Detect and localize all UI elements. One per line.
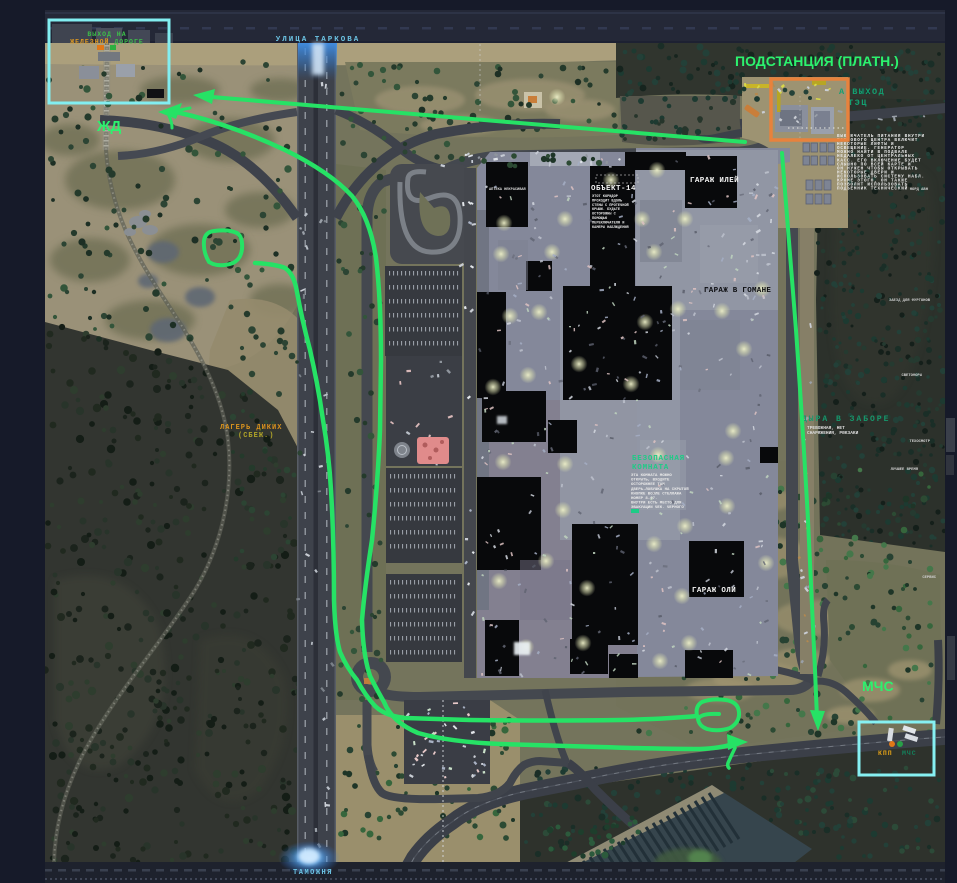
- svg-text:СЕРВИС: СЕРВИС: [922, 576, 936, 580]
- svg-text:СНАРЯЖЕНИЯ, РЮКЗАКИ: СНАРЯЖЕНИЯ, РЮКЗАКИ: [807, 430, 859, 436]
- svg-text:ПРОХОДИТ ВДОЛЬ: ПРОХОДИТ ВДОЛЬ: [592, 199, 623, 203]
- svg-text:КНОПКЕ ВОЗЛЕ СТЕЛЛАЖА: КНОПКЕ ВОЗЛЕ СТЕЛЛАЖА: [631, 492, 682, 496]
- svg-text:ОСТОРОЖНЫ С: ОСТОРОЖНЫ С: [592, 213, 617, 217]
- svg-text:НОМЕР 8-07.: НОМЕР 8-07.: [631, 497, 657, 501]
- svg-text:ТЕХОСМОТР: ТЕХОСМОТР: [909, 440, 930, 444]
- svg-text:ЗАЕЗД ДЛЯ ФУРГОНОВ: ЗАЕЗД ДЛЯ ФУРГОНОВ: [889, 299, 931, 303]
- svg-text:МЧС: МЧС: [862, 678, 894, 694]
- svg-text:ЖЕЛЕЗНОЙ ДОРОГЕ: ЖЕЛЕЗНОЙ ДОРОГЕ: [70, 38, 144, 46]
- svg-text:ЛУЧШЕЕ ВРЕМЯ: ЛУЧШЕЕ ВРЕМЯ: [891, 468, 919, 472]
- svg-text:ПЕРЕКЛЮЧАТЕЛЯ И: ПЕРЕКЛЮЧАТЕЛЯ И: [592, 221, 624, 225]
- svg-text:СТЕНЫ С ПРОТЕЧКОЙ: СТЕНЫ С ПРОТЕЧКОЙ: [592, 203, 629, 208]
- svg-text:ВНУТРИ ЕСТЬ МЕСТО ДЛЯ: ВНУТРИ ЕСТЬ МЕСТО ДЛЯ: [631, 502, 682, 506]
- svg-text:НОРД АВН: НОРД АВН: [910, 188, 929, 192]
- svg-text:ДЫРА В ЗАБОРЕ: ДЫРА В ЗАБОРЕ: [802, 415, 890, 424]
- svg-text:ПОМОЩЬЮ: ПОМОЩЬЮ: [592, 217, 608, 221]
- svg-text:ЖД: ЖД: [96, 118, 122, 135]
- svg-text:ЛАГЕРЬ ДИКИХ: ЛАГЕРЬ ДИКИХ: [220, 424, 282, 432]
- svg-text:ПОДСТАНЦИЯ (ПЛАТН.): ПОДСТАНЦИЯ (ПЛАТН.): [735, 53, 899, 69]
- svg-text:ТЭЦ: ТЭЦ: [848, 98, 868, 108]
- svg-text:КАМЕРЫ НАБЛЮДЕНИЯ: КАМЕРЫ НАБЛЮДЕНИЯ: [592, 226, 629, 230]
- svg-text:ОТКРЫТЬ, ВХОДИТЕ: ОТКРЫТЬ, ВХОДИТЕ: [631, 479, 670, 483]
- svg-text:ПОДЪЕМНИК ТЕХНИЧЕСКИЙ: ПОДЪЕМНИК ТЕХНИЧЕСКИЙ: [837, 187, 908, 192]
- svg-text:КРЫШИ. БУДЬТЕ: КРЫШИ. БУДЬТЕ: [592, 208, 621, 212]
- svg-text:БЕЗОПАСНАЯ: БЕЗОПАСНАЯ: [632, 455, 685, 463]
- svg-text:АПТЕКА НЕКРАСИВАЯ: АПТЕКА НЕКРАСИВАЯ: [489, 188, 526, 192]
- svg-text:ЭВАКУАЦИИ ЧЕК. ЧЕРНОГО: ЭВАКУАЦИИ ЧЕК. ЧЕРНОГО: [631, 506, 684, 510]
- svg-text:(СБЕЖ.): (СБЕЖ.): [238, 432, 274, 440]
- svg-text:ГАРАЖ ОЛИ: ГАРАЖ ОЛИ: [692, 587, 736, 595]
- svg-text:ЭТОТ КОРИДОР: ЭТОТ КОРИДОР: [592, 195, 618, 199]
- svg-text:А-ВЫХОД: А-ВЫХОД: [839, 87, 885, 97]
- svg-text:ТАМОЖНЯ: ТАМОЖНЯ: [293, 869, 333, 877]
- svg-text:ЭТА КОМНАТА МОЖНО: ЭТА КОМНАТА МОЖНО: [631, 474, 672, 478]
- svg-text:ГАРАЖ В ГОМАНЕ: ГАРАЖ В ГОМАНЕ: [704, 287, 771, 295]
- svg-text:ДВЕРЬ-ЛОВУШКА НА СКРЫТОЙ: ДВЕРЬ-ЛОВУШКА НА СКРЫТОЙ: [631, 487, 689, 492]
- svg-text:ВЫХОД НА: ВЫХОД НА: [87, 31, 126, 38]
- svg-text:КПП: КПП: [878, 750, 893, 757]
- svg-text:ОСТОРОЖНЕЕ ТАМ: ОСТОРОЖНЕЕ ТАМ: [631, 483, 665, 487]
- svg-text:УЛИЦА ТАРКОВА: УЛИЦА ТАРКОВА: [276, 36, 361, 44]
- svg-text:ГАРАЖ ИЛЕЙ: ГАРАЖ ИЛЕЙ: [690, 176, 739, 185]
- svg-text:СВЕТОФОРЫ: СВЕТОФОРЫ: [901, 374, 922, 378]
- svg-text:ОБЪЕКТ-14: ОБЪЕКТ-14: [591, 185, 636, 193]
- svg-text:КОМНАТА: КОМНАТА: [632, 464, 669, 472]
- svg-text:МЧС: МЧС: [902, 750, 917, 757]
